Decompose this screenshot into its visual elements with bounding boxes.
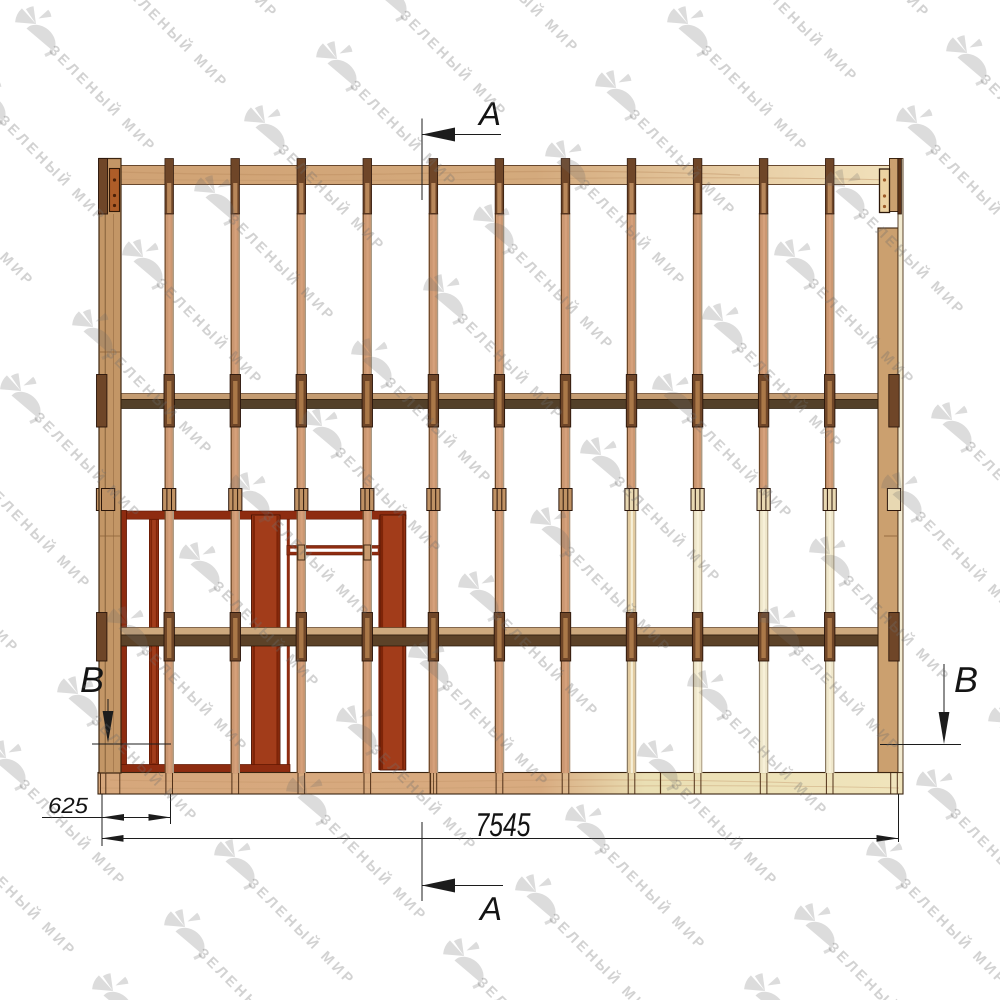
svg-text:B: B (954, 659, 978, 700)
svg-text:7545: 7545 (476, 806, 531, 843)
svg-text:A: A (478, 890, 502, 927)
svg-text:B: B (80, 659, 104, 700)
